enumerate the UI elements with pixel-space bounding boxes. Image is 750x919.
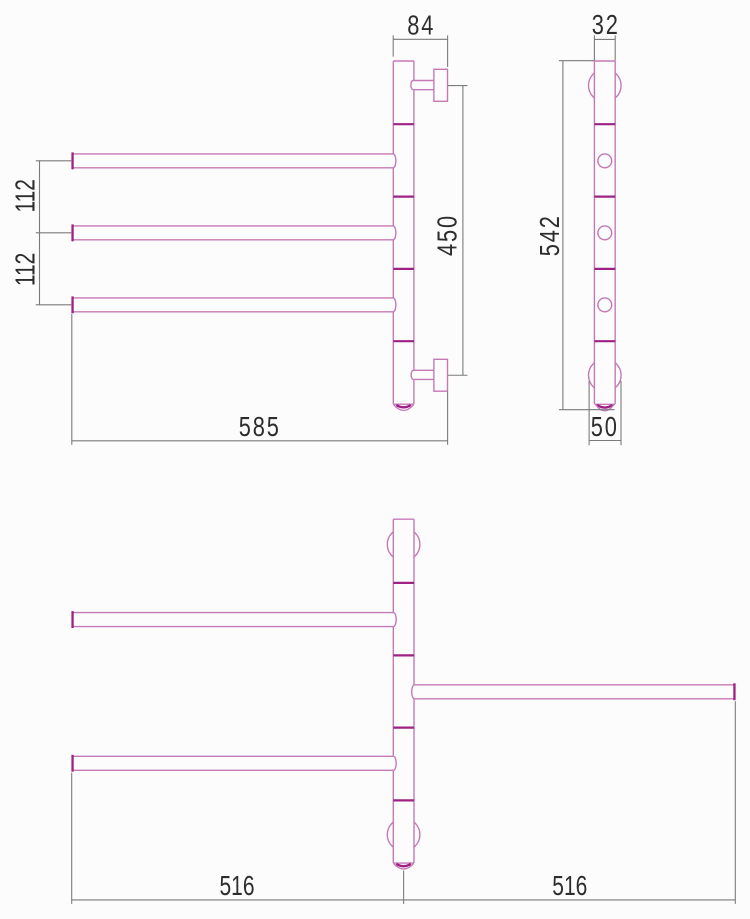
svg-text:542: 542 xyxy=(534,214,565,256)
svg-text:585: 585 xyxy=(239,411,281,442)
svg-text:32: 32 xyxy=(592,9,620,40)
svg-text:84: 84 xyxy=(407,10,435,41)
svg-text:112: 112 xyxy=(11,253,42,286)
svg-text:450: 450 xyxy=(432,214,463,256)
svg-text:112: 112 xyxy=(11,179,42,212)
svg-text:516: 516 xyxy=(219,871,254,902)
svg-text:50: 50 xyxy=(591,412,619,443)
svg-text:516: 516 xyxy=(552,871,587,902)
